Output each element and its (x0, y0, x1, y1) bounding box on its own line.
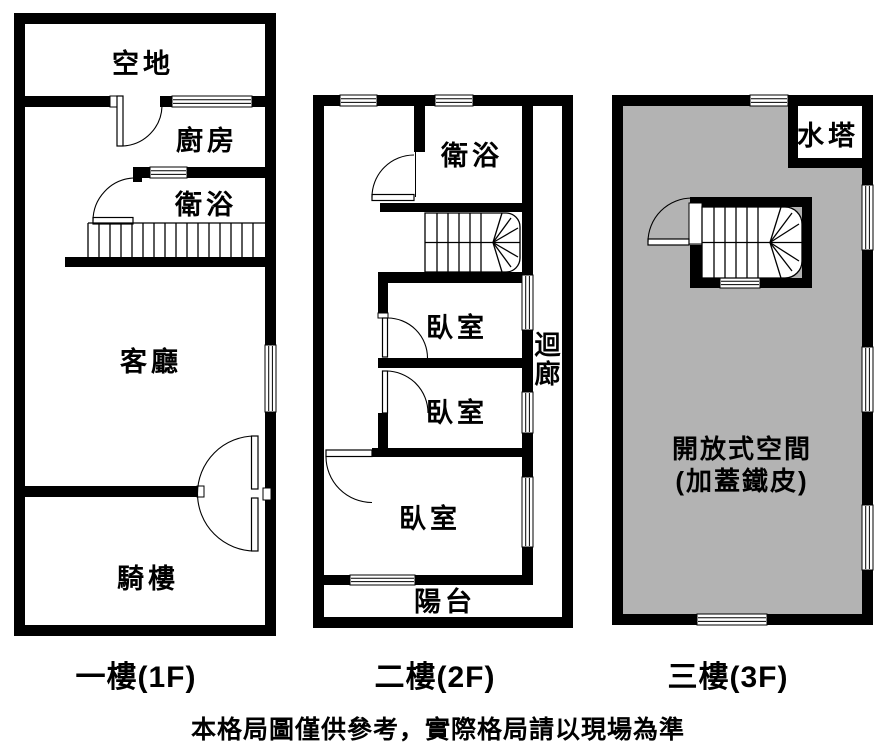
wall (160, 96, 172, 107)
wall (612, 95, 623, 625)
wall (187, 167, 265, 178)
wall (14, 13, 25, 636)
covered-open-space-fill (623, 106, 862, 614)
staircase-3f (702, 207, 802, 278)
window (697, 614, 767, 625)
disclaimer-text: 本格局圖僅供參考，實際格局請以現場為準 (191, 715, 685, 744)
room-label-kitchen: 廚房 (176, 125, 238, 156)
floor-label-2f: 二樓(2F) (375, 661, 496, 694)
staircase-2f (425, 213, 520, 272)
window (862, 505, 873, 570)
wall (324, 575, 350, 585)
wall (265, 13, 276, 636)
room-label-bathroom-1f: 衛浴 (174, 189, 237, 220)
window (522, 392, 533, 433)
room-label-bathroom-2f: 衛浴 (440, 140, 503, 171)
wall (414, 106, 425, 152)
wall (25, 486, 197, 497)
wall (25, 96, 110, 107)
wall (788, 158, 862, 168)
wall (378, 413, 388, 448)
door-frame (378, 313, 388, 318)
wall (14, 625, 276, 636)
wall (522, 433, 533, 477)
window (435, 95, 473, 106)
window (862, 347, 873, 412)
wall (372, 448, 522, 457)
door-swing (326, 450, 372, 503)
wall (313, 95, 324, 628)
window (350, 575, 415, 585)
door-swing (383, 318, 428, 358)
entrance-double-door (198, 436, 272, 551)
floor-label-3f: 三樓(3F) (668, 661, 789, 694)
window (522, 477, 533, 547)
window (522, 275, 533, 330)
room-label-bedroom-3: 臥室 (399, 503, 461, 534)
room-label-balcony: 陽台 (414, 586, 476, 617)
floor-plan-3f: 水塔 開放式空間 (加蓋鐵皮) (612, 95, 873, 625)
window (340, 95, 377, 106)
window (862, 185, 873, 250)
floor-plan-1f: 空地 廚房 衛浴 客廳 騎樓 (14, 13, 276, 636)
wall (14, 13, 276, 24)
wall (380, 203, 533, 212)
wall (522, 106, 533, 275)
room-label-bedroom-1: 臥室 (426, 312, 488, 343)
floor-plan-image: 空地 廚房 衛浴 客廳 騎樓 (0, 0, 889, 750)
window (750, 95, 788, 106)
door-swing (93, 178, 133, 224)
window (720, 278, 760, 288)
window (150, 167, 187, 178)
room-label-arcade: 騎樓 (117, 564, 179, 594)
room-label-open-space-line2: (加蓋鐵皮) (675, 466, 808, 496)
window (265, 345, 276, 412)
door-swing (383, 371, 429, 413)
window (172, 96, 252, 107)
door-swing (372, 152, 416, 201)
floor-plan-2f: 衛浴 臥室 臥室 臥室 迴廊 陽台 (313, 95, 573, 628)
room-label-corridor: 迴廊 (531, 331, 561, 389)
wall (65, 257, 276, 267)
wall (378, 272, 522, 283)
room-label-living-room: 客廳 (120, 346, 182, 377)
wall (612, 95, 873, 106)
room-label-water-tank: 水塔 (797, 121, 859, 151)
wall (133, 167, 150, 178)
floor-plan-canvas: 空地 廚房 衛浴 客廳 騎樓 (0, 0, 889, 750)
door-frame (110, 96, 117, 107)
floor-label-1f: 一樓(1F) (76, 661, 197, 694)
staircase-1f (88, 223, 265, 257)
door-swing (117, 96, 162, 146)
room-label-open-space-line1: 開放式空間 (672, 434, 812, 464)
room-label-vacant-lot: 空地 (112, 48, 174, 79)
wall (378, 358, 522, 368)
wall (378, 283, 388, 313)
wall (562, 95, 573, 628)
wall (313, 617, 573, 628)
wall (415, 575, 533, 585)
room-label-bedroom-2: 臥室 (426, 397, 488, 428)
wall (252, 96, 265, 107)
